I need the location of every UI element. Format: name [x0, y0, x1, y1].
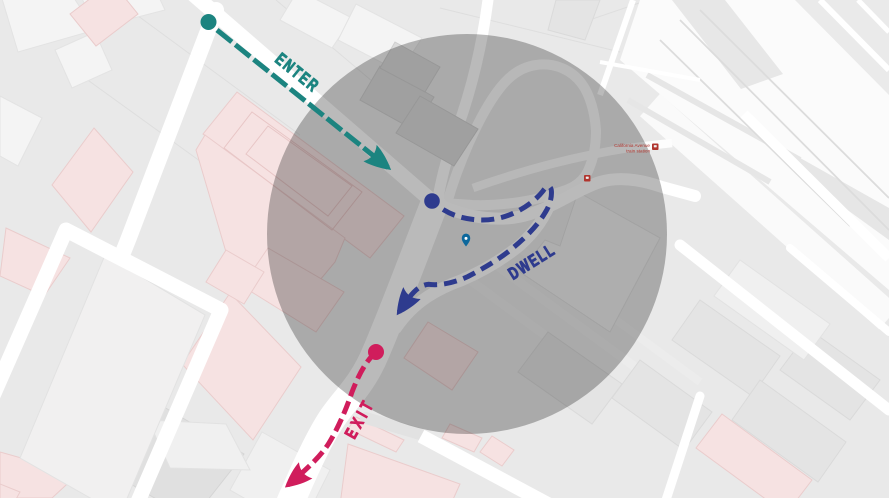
svg-text:California Avenue: California Avenue: [614, 143, 650, 148]
svg-text:train station: train station: [626, 149, 650, 154]
